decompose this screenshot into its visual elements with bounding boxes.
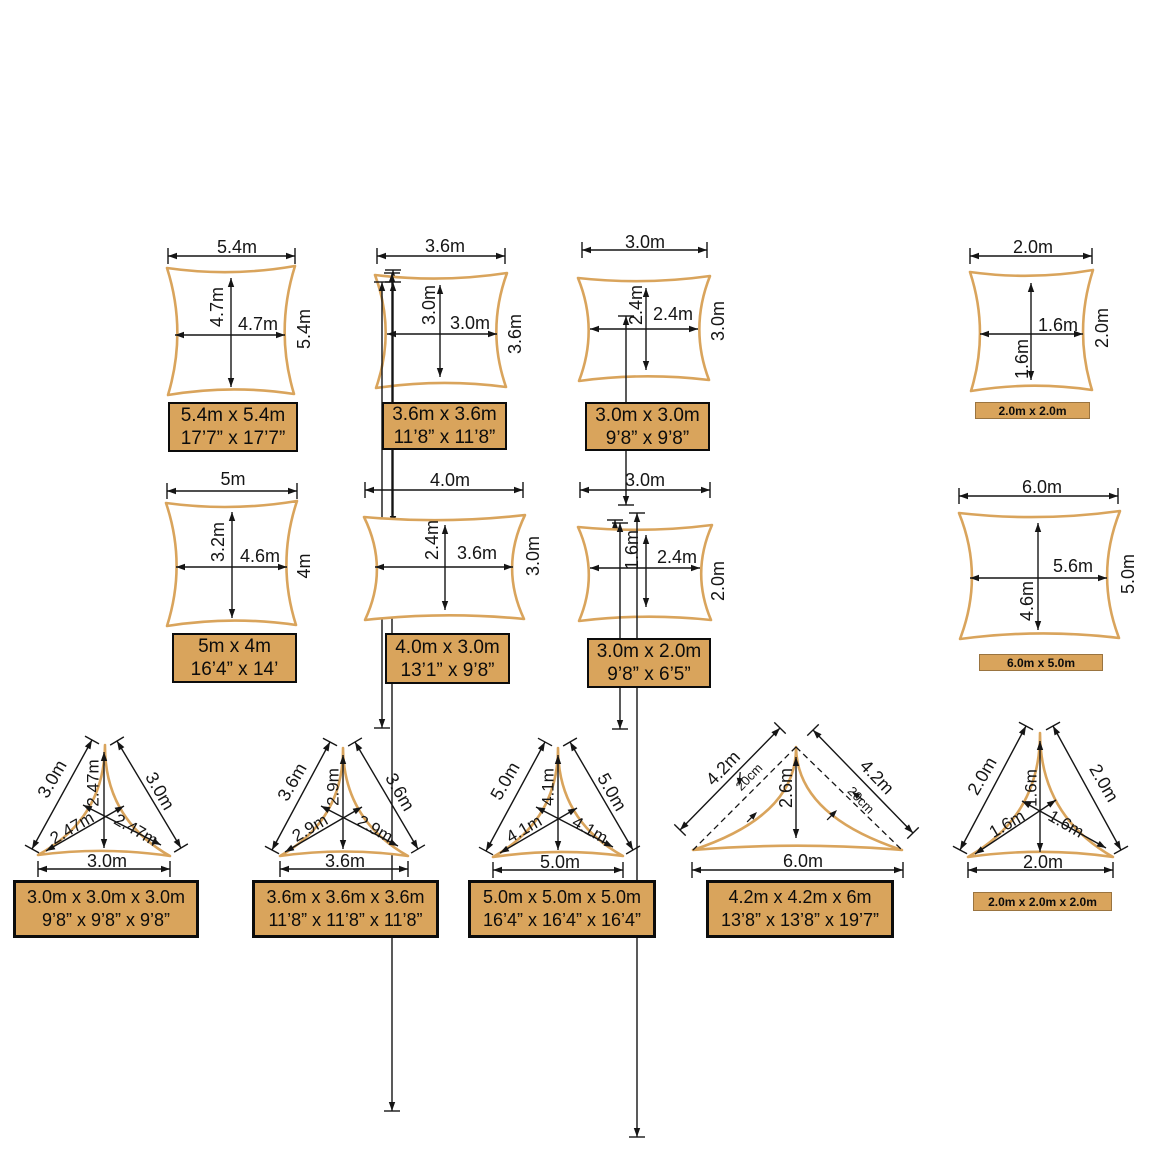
size-feet: 16’4” x 16’4” x 16’4” <box>483 909 641 932</box>
size-metric: 3.0m x 3.0m x 3.0m <box>27 886 185 909</box>
sq54-side-dim: 5.4m <box>295 309 313 349</box>
t20-size-bar: 2.0m x 2.0m x 2.0m <box>973 892 1112 911</box>
size-feet: 9’8” x 6’5” <box>607 663 690 686</box>
r6x5-top-dim: 6.0m <box>1022 478 1062 496</box>
t30-size-box: 3.0m x 3.0m x 3.0m 9’8” x 9’8” x 9’8” <box>13 880 199 938</box>
sq36-side-dim: 3.6m <box>506 314 524 354</box>
size-metric: 5.0m x 5.0m x 5.0m <box>483 886 641 909</box>
size-metric: 4.2m x 4.2m x 6m <box>728 886 871 909</box>
r5x4-top-dim: 5m <box>220 470 245 488</box>
r6x5-inner-v-dim: 4.6m <box>1018 581 1036 621</box>
sq54-size-box: 5.4m x 5.4m 17’7” x 17’7” <box>168 402 298 452</box>
r4x3-inner-h-dim: 3.6m <box>457 544 497 562</box>
r5x4-size-box: 5m x 4m 16’4” x 14’ <box>172 633 297 683</box>
sq54-inner-v-dim: 4.7m <box>208 287 226 327</box>
sq30-inner-h-dim: 2.4m <box>653 305 693 323</box>
size-feet: 13’8” x 13’8” x 19’7” <box>721 909 879 932</box>
t30-inner-v-dim: 2.47m <box>85 759 102 806</box>
size-feet: 9’8” x 9’8” x 9’8” <box>42 909 170 932</box>
size-metric: 5m x 4m <box>198 635 271 658</box>
size-metric: 5.4m x 5.4m <box>181 404 286 427</box>
shade-sail-size-chart: 5.4m 5.4m 4.7m 4.7m 5.4m x 5.4m 17’7” x … <box>0 0 1173 1173</box>
t20-inner-v-dim: 1.6m <box>1023 769 1040 807</box>
sq36-top-dim: 3.6m <box>425 237 465 255</box>
r5x4-inner-v-dim: 3.2m <box>209 522 227 562</box>
sq20-inner-h-dim: 1.6m <box>1038 316 1078 334</box>
size-feet: 11’8” x 11’8” <box>394 426 496 449</box>
size-metric: 3.6m x 3.6m <box>392 403 497 426</box>
r4x3-inner-v-dim: 2.4m <box>423 520 441 560</box>
r3x2-side-dim: 2.0m <box>709 561 727 601</box>
size-feet: 13’1” x 9’8” <box>401 659 495 682</box>
sq30-inner-v-dim: 2.4m <box>627 285 645 325</box>
dimension-artwork <box>0 0 1173 1173</box>
sq54-inner-h-dim: 4.7m <box>238 315 278 333</box>
r3x2-inner-h-dim: 2.4m <box>657 548 697 566</box>
sq20-inner-v-dim: 1.6m <box>1013 339 1031 379</box>
size-metric: 3.0m x 3.0m <box>595 404 700 427</box>
sq36-size-box: 3.6m x 3.6m 11’8” x 11’8” <box>382 402 507 450</box>
t30-bottom-dim: 3.0m <box>87 852 127 870</box>
r4x3-size-box: 4.0m x 3.0m 13’1” x 9’8” <box>385 633 510 684</box>
size-feet: 16’4” x 14’ <box>191 658 279 681</box>
r4x3-side-dim: 3.0m <box>524 536 542 576</box>
t426-size-box: 4.2m x 4.2m x 6m 13’8” x 13’8” x 19’7” <box>706 880 894 938</box>
r5x4-side-dim: 4m <box>295 553 313 578</box>
sq36-inner-h-dim: 3.0m <box>450 314 490 332</box>
t20-bottom-dim: 2.0m <box>1023 853 1063 871</box>
r3x2-size-box: 3.0m x 2.0m 9’8” x 6’5” <box>587 638 711 688</box>
sq54-top-dim: 5.4m <box>217 238 257 256</box>
sq20-top-dim: 2.0m <box>1013 238 1053 256</box>
r6x5-size-bar: 6.0m x 5.0m <box>979 654 1103 671</box>
t50-inner-v-dim: 4.1m <box>540 768 557 806</box>
r6x5-side-dim: 5.0m <box>1119 554 1137 594</box>
sq36-inner-v-dim: 3.0m <box>420 285 438 325</box>
t426-bottom-dim: 6.0m <box>783 852 823 870</box>
size-metric: 3.0m x 2.0m <box>597 640 702 663</box>
r4x3-top-dim: 4.0m <box>430 471 470 489</box>
t36-inner-v-dim: 2.9m <box>325 768 342 806</box>
size-metric: 3.6m x 3.6m x 3.6m <box>266 886 424 909</box>
sq30-side-dim: 3.0m <box>709 301 727 341</box>
t50-bottom-dim: 5.0m <box>540 853 580 871</box>
r5x4-inner-h-dim: 4.6m <box>240 547 280 565</box>
size-feet: 11’8” x 11’8” x 11’8” <box>268 909 422 932</box>
t36-size-box: 3.6m x 3.6m x 3.6m 11’8” x 11’8” x 11’8” <box>252 880 439 938</box>
r3x2-inner-v-dim: 1.6m <box>623 530 641 570</box>
sq30-top-dim: 3.0m <box>625 233 665 251</box>
size-feet: 9’8” x 9’8” <box>606 427 689 450</box>
sq30-size-box: 3.0m x 3.0m 9’8” x 9’8” <box>585 402 710 451</box>
t50-size-box: 5.0m x 5.0m x 5.0m 16’4” x 16’4” x 16’4” <box>468 880 656 938</box>
r6x5-inner-h-dim: 5.6m <box>1053 557 1093 575</box>
size-metric: 4.0m x 3.0m <box>395 636 500 659</box>
sq20-side-dim: 2.0m <box>1093 308 1111 348</box>
r3x2-top-dim: 3.0m <box>625 471 665 489</box>
t36-bottom-dim: 3.6m <box>325 852 365 870</box>
sq20-size-bar: 2.0m x 2.0m <box>975 402 1090 419</box>
size-feet: 17’7” x 17’7” <box>181 427 286 450</box>
t426-inner-v-dim: 2.6m <box>777 768 795 808</box>
